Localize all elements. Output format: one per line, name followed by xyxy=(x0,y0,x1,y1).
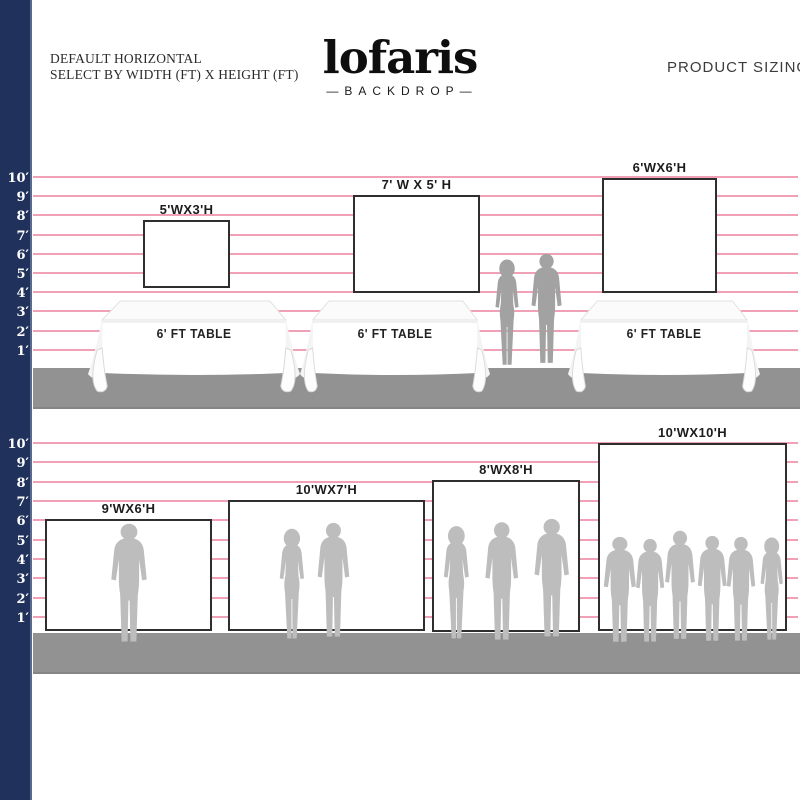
ruler-label: 2′ xyxy=(0,593,29,607)
backdrop-size-label: 9'WX6'H xyxy=(45,501,212,516)
backdrop-size-label: 6'WX6'H xyxy=(602,160,717,175)
ruler-label: 5′ xyxy=(0,268,29,282)
ruler-label: 6′ xyxy=(0,515,29,529)
table-label: 6' FT TABLE xyxy=(576,326,753,341)
backdrop-5x3 xyxy=(143,220,230,288)
banquet-table xyxy=(568,298,760,394)
ruler-label: 4′ xyxy=(0,554,29,568)
subtitle-line2: SELECT BY WIDTH (FT) X HEIGHT (FT) xyxy=(50,67,299,83)
backdrop-6x6 xyxy=(602,178,717,293)
ruler-label: 7′ xyxy=(0,230,29,244)
couple-silhouette xyxy=(490,252,568,369)
banquet-table xyxy=(300,298,490,394)
ruler-label: 6′ xyxy=(0,249,29,263)
ruler-label: 3′ xyxy=(0,306,29,320)
logo-wordmark: lofaris xyxy=(290,34,510,82)
ruler-label: 9′ xyxy=(0,457,29,471)
default-orientation-note: DEFAULT HORIZONTAL SELECT BY WIDTH (FT) … xyxy=(50,51,299,83)
ruler-label: 9′ xyxy=(0,191,29,205)
ruler-label: 3′ xyxy=(0,573,29,587)
ruler-label: 8′ xyxy=(0,210,29,224)
lofaris-logo: lofaris —BACKDROP— xyxy=(290,34,510,98)
subtitle-line1: DEFAULT HORIZONTAL xyxy=(50,51,299,67)
backdrop-size-label: 10'WX10'H xyxy=(598,425,787,440)
backdrop-7x5 xyxy=(353,195,480,293)
table-label: 6' FT TABLE xyxy=(96,326,291,341)
product-sizing-diagram: DEFAULT HORIZONTAL SELECT BY WIDTH (FT) … xyxy=(0,0,800,800)
ruler-label: 4′ xyxy=(0,287,29,301)
ruler-label: 2′ xyxy=(0,326,29,340)
ruler-sidebar xyxy=(0,0,32,800)
ruler-label: 10′ xyxy=(0,438,29,452)
ruler-label: 10′ xyxy=(0,172,29,186)
couple-silhouette xyxy=(274,521,356,643)
banquet-table xyxy=(88,298,300,394)
group-of-three-silhouette xyxy=(438,517,574,643)
ruler-label: 8′ xyxy=(0,477,29,491)
ruler-label: 7′ xyxy=(0,496,29,510)
man-silhouette xyxy=(106,523,152,647)
table-label: 6' FT TABLE xyxy=(308,326,483,341)
logo-backdrop-text: —BACKDROP— xyxy=(290,84,510,98)
ruler-label: 5′ xyxy=(0,535,29,549)
page-title: PRODUCT SIZING xyxy=(667,59,800,76)
backdrop-size-label: 7' W X 5' H xyxy=(353,177,480,192)
ruler-label: 1′ xyxy=(0,345,29,359)
backdrop-size-label: 5'WX3'H xyxy=(143,202,230,217)
backdrop-size-label: 10'WX7'H xyxy=(228,482,425,497)
backdrop-size-label: 8'WX8'H xyxy=(432,462,580,477)
ruler-label: 1′ xyxy=(0,612,29,626)
group-of-six-silhouette xyxy=(599,528,788,644)
